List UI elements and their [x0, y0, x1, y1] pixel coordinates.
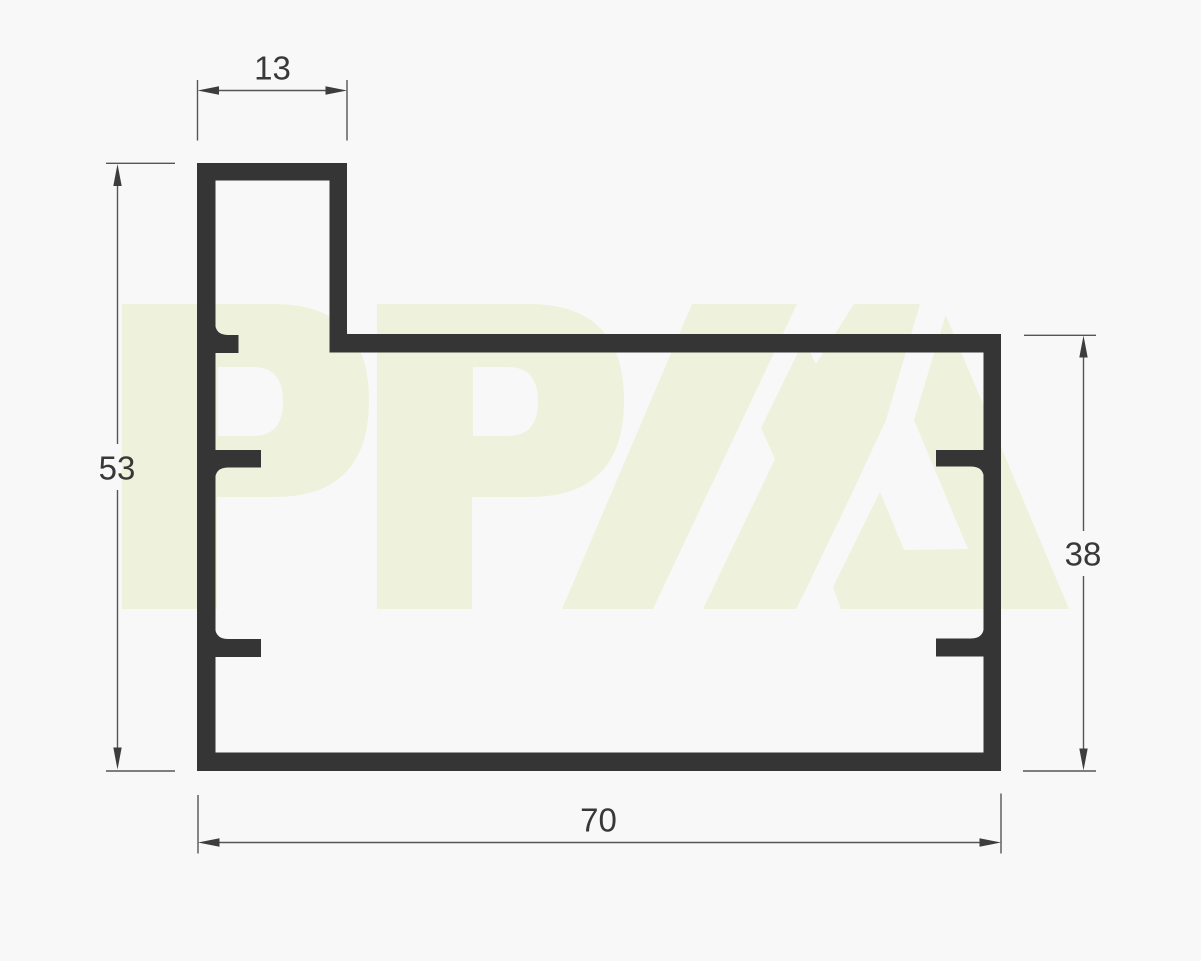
svg-text:53: 53 [99, 450, 136, 487]
svg-text:13: 13 [254, 50, 291, 87]
svg-text:38: 38 [1065, 536, 1102, 573]
svg-text:70: 70 [580, 802, 617, 839]
